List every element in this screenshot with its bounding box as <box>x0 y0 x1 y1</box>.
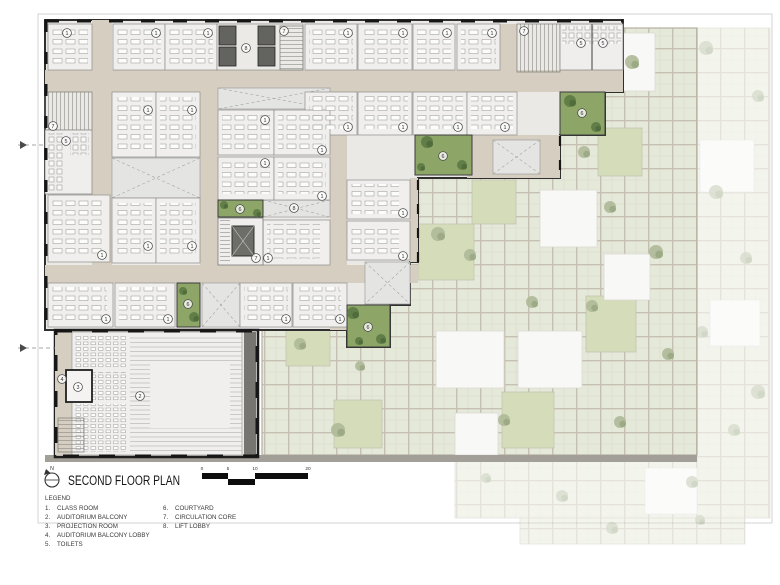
room-number-text: 1 <box>66 31 69 37</box>
scale-tick-20: 20 <box>305 466 311 472</box>
tree-icon <box>745 257 752 264</box>
room-number-text: 1 <box>402 211 405 217</box>
tree-icon <box>561 495 568 502</box>
tree-icon <box>531 301 538 308</box>
auditorium-stair <box>58 418 84 452</box>
room-number-text: 1 <box>101 253 104 259</box>
tree-icon <box>486 477 492 483</box>
room-number-text: 8 <box>293 206 296 212</box>
tree-icon <box>257 212 261 216</box>
room-number-text: 1 <box>504 125 507 131</box>
legend-item-num: 5. <box>45 541 50 548</box>
room-number-text: 1 <box>207 31 210 37</box>
auditorium <box>55 330 258 457</box>
tree-icon <box>381 338 387 344</box>
tree-icon <box>655 251 663 259</box>
plaza-skylight-square <box>540 190 597 247</box>
room-number-text: 1 <box>402 31 405 37</box>
tree-icon <box>733 429 740 436</box>
room-number-text: 1 <box>264 161 267 167</box>
north-label: N <box>50 466 54 472</box>
plaza-skylight-square <box>518 331 582 388</box>
room-number-text: 5 <box>602 41 605 47</box>
room-number-text: 5 <box>65 139 68 145</box>
room-number-text: 1 <box>321 148 324 154</box>
legend-item-num: 4. <box>45 532 50 539</box>
legend-item-num: 2. <box>45 514 50 521</box>
tree-icon <box>426 141 433 148</box>
tree-icon <box>421 166 425 170</box>
legend-item-label: TOILETS <box>57 541 83 548</box>
balcony-seating <box>90 372 128 402</box>
plaza-skylight-square <box>710 300 760 346</box>
tree-icon <box>691 481 698 488</box>
sheet-title: SECOND FLOOR PLAN <box>68 473 180 488</box>
room-number-text: 1 <box>347 31 350 37</box>
tree-icon <box>352 312 359 319</box>
plaza-grass-tile <box>472 180 516 224</box>
legend-item-label: CLASS ROOM <box>57 505 98 512</box>
tree-icon <box>337 429 345 437</box>
room-number-text: 1 <box>191 108 194 114</box>
plaza-skylight-square <box>604 254 650 300</box>
room-number-text: 7 <box>523 29 526 35</box>
tree-icon <box>183 290 187 294</box>
room-number-text: 1 <box>402 254 405 260</box>
scale-tick-10: 10 <box>252 466 258 472</box>
room-number-text: 1 <box>147 244 150 250</box>
tree-icon <box>631 61 639 69</box>
room-number-text: 6 <box>239 207 242 213</box>
tree-icon <box>701 331 708 338</box>
room-number-text: 1 <box>191 244 194 250</box>
toilet-fixtures <box>47 133 63 191</box>
tree-icon <box>224 204 228 208</box>
room-number-text: 4 <box>61 377 64 383</box>
room-number-text: 1 <box>457 125 460 131</box>
tree-icon <box>596 126 602 132</box>
tree-icon <box>715 191 723 199</box>
room-number-text: 1 <box>446 31 449 37</box>
tree-icon <box>591 305 598 312</box>
legend-item-num: 6. <box>163 505 168 512</box>
room-number-text: 6 <box>187 302 190 308</box>
legend-item-num: 1. <box>45 505 50 512</box>
room-number-text: 7 <box>52 124 55 130</box>
room-number-text: 8 <box>245 46 248 52</box>
tree-icon <box>583 151 590 158</box>
room-number-text: 1 <box>321 194 324 200</box>
balcony-seating <box>74 334 128 368</box>
toilet-fixtures <box>70 133 89 155</box>
legend-item-label: LIFT LOBBY <box>175 523 210 530</box>
floor-plan-sheet: 1111111111111111111111111112345556666677… <box>0 0 780 585</box>
legend-item-num: 8. <box>163 523 168 530</box>
plaza-skylight-square <box>645 468 697 514</box>
room-number-text: 1 <box>347 125 350 131</box>
room-number-text: 5 <box>580 41 583 47</box>
central-stair-flight <box>220 220 230 263</box>
room-number-text: 1 <box>285 317 288 323</box>
scale-tick-0: 0 <box>201 466 204 472</box>
plaza-skylight-square <box>436 331 504 388</box>
room-number-text: 1 <box>339 317 342 323</box>
tree-icon <box>667 353 674 360</box>
tree-icon <box>700 519 706 525</box>
room-number-text: 1 <box>491 31 494 37</box>
room-number-text: 2 <box>139 394 142 400</box>
auditorium-side-wall <box>244 332 256 455</box>
tree-icon <box>757 95 764 102</box>
tree-icon <box>757 391 765 399</box>
plaza-skylight-square <box>455 413 498 455</box>
room-number-text: 1 <box>167 317 170 323</box>
room-number-text: 1 <box>147 108 150 114</box>
tree-icon <box>503 419 510 426</box>
legend-item-label: COURTYARD <box>175 505 214 512</box>
scale-tick-5: 5 <box>227 466 230 472</box>
tree-icon <box>359 340 363 344</box>
legend-item-label: PROJECTION ROOM <box>57 523 118 530</box>
tree-icon <box>437 233 445 241</box>
room-number-text: 1 <box>267 256 270 262</box>
tree-icon <box>194 316 200 322</box>
room-number-text: 1 <box>105 317 108 323</box>
tree-icon <box>619 421 626 428</box>
legend-item-label: AUDITORIUM BALCONY LOBBY <box>57 532 150 539</box>
room-number-text: 3 <box>77 385 80 391</box>
legend-item-num: 3. <box>45 523 50 530</box>
tree-icon <box>705 47 713 55</box>
room-number-text: 1 <box>264 118 267 124</box>
legend-item-num: 7. <box>163 514 168 521</box>
tree-icon <box>299 343 306 350</box>
room-number-text: 1 <box>155 31 158 37</box>
room-number-text: 6 <box>581 111 584 117</box>
room-number-text: 1 <box>402 125 405 131</box>
room-number-text: 6 <box>367 325 370 331</box>
tree-icon <box>360 365 366 371</box>
room-number-text: 6 <box>442 154 445 160</box>
room-number-text: 7 <box>255 256 258 262</box>
tree-icon <box>569 100 576 107</box>
tree-icon <box>469 254 476 261</box>
legend-item-label: CIRCULATION CORE <box>175 514 236 521</box>
tree-icon <box>462 164 468 170</box>
tree-icon <box>611 527 618 534</box>
plaza-skylight-square <box>700 140 754 192</box>
tree-icon <box>609 206 616 213</box>
room-number-text: 7 <box>283 29 286 35</box>
legend-heading: LEGEND <box>45 495 71 502</box>
legend-item-label: AUDITORIUM BALCONY <box>57 514 127 521</box>
